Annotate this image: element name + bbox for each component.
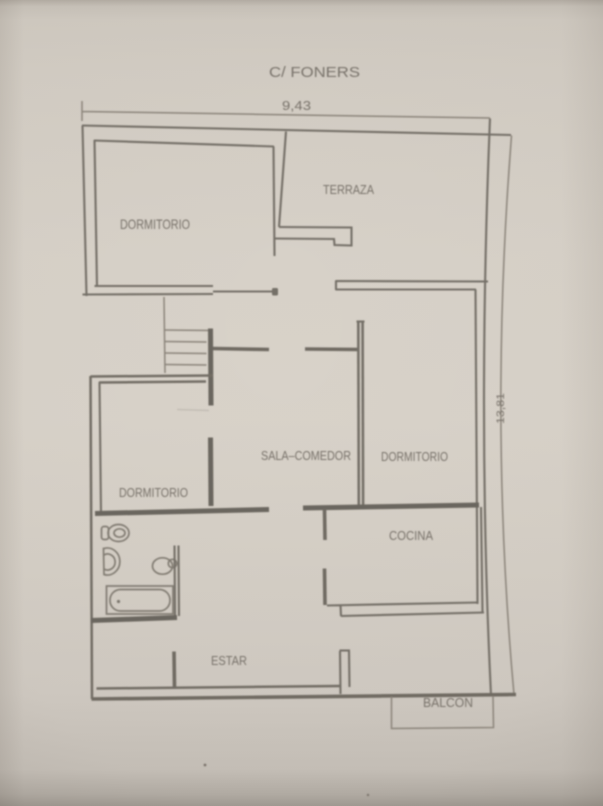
svg-text:BALCON: BALCON (423, 696, 473, 710)
svg-text:DORMITORIO: DORMITORIO (120, 216, 190, 232)
svg-text:COCINA: COCINA (389, 529, 434, 543)
svg-text:ESTAR: ESTAR (211, 654, 247, 668)
svg-text:DORMITORIO: DORMITORIO (119, 486, 188, 500)
svg-text:TERRAZA: TERRAZA (323, 182, 374, 197)
svg-text:C/ FONERS: C/ FONERS (269, 65, 360, 81)
svg-text:13,81: 13,81 (495, 393, 507, 424)
svg-text:9,43: 9,43 (282, 99, 311, 113)
svg-text:DORMITORIO: DORMITORIO (381, 449, 448, 464)
svg-text:SALA–COMEDOR: SALA–COMEDOR (261, 448, 351, 463)
